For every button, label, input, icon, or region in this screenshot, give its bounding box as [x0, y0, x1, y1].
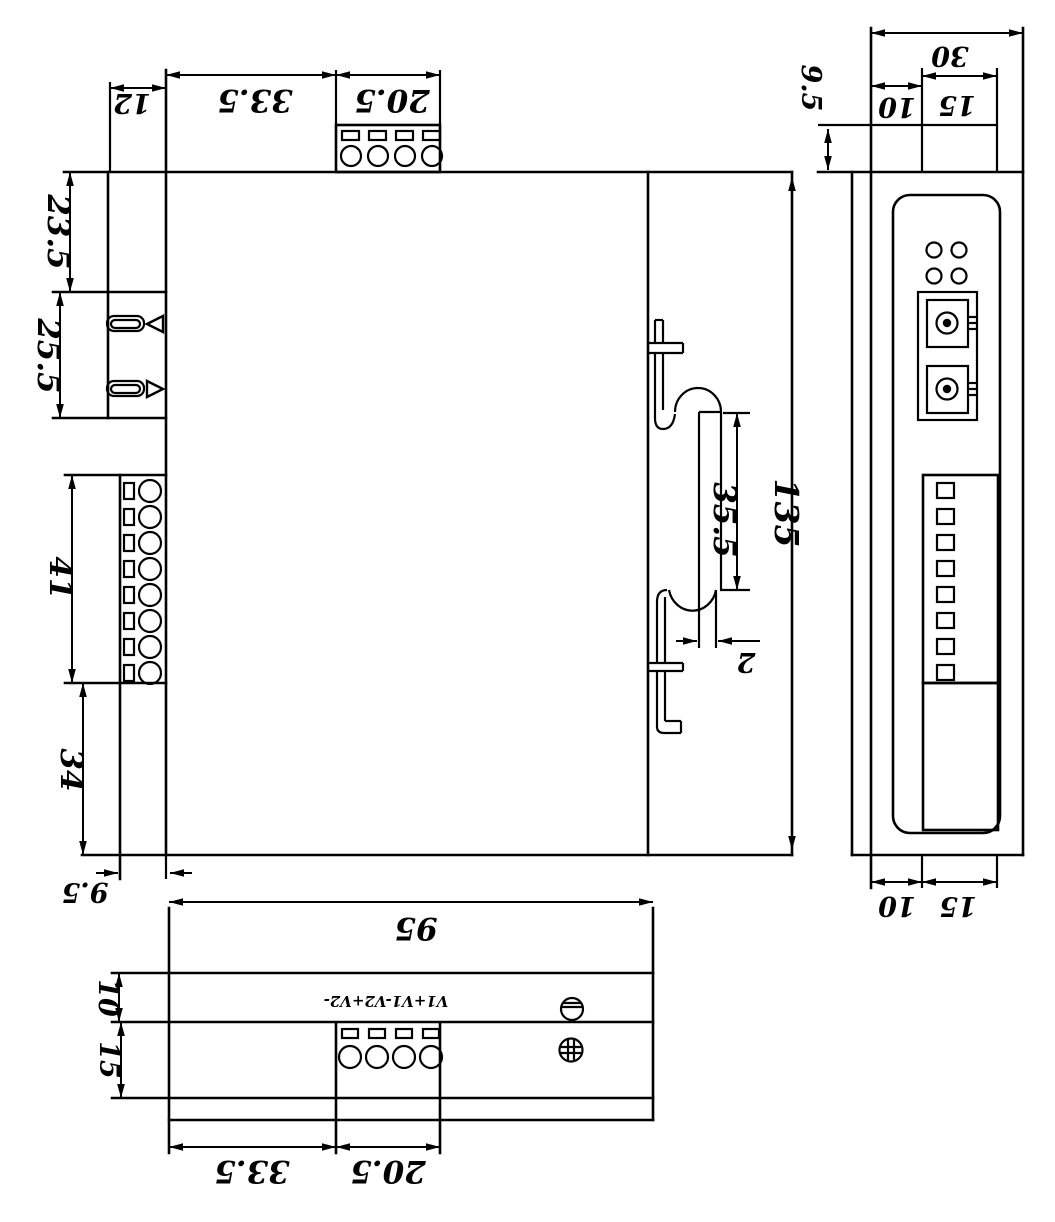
led-icon — [927, 269, 942, 284]
dim-total-width: 95 — [394, 910, 437, 946]
side-view-dimensions: 35.5 135 2 — [676, 172, 806, 855]
drawing-canvas: 12 33.5 20.5 23.5 25.5 41 34 9.5 — [0, 0, 1055, 1222]
led-indicators — [927, 243, 967, 284]
dim-bottom-seg1: 10 — [878, 890, 916, 921]
dim-front-depth: 10 — [92, 979, 123, 1017]
terminal-legend-text: V1+V1-V2+V2- — [324, 992, 449, 1010]
dim-top-seg-left: 33.5 — [217, 82, 293, 118]
slotted-screw-icon — [561, 998, 583, 1020]
dim-terminal-section: 41 — [42, 556, 78, 599]
bottom-view: V1+V1-V2+V2- 95 10 15 33.5 20.5 — [92, 902, 653, 1189]
right-panel-view: 30 15 10 9.5 10 15 — [795, 28, 1023, 921]
side-terminal-block — [65, 475, 166, 684]
din-clip-bottom — [647, 590, 683, 733]
dim-rail-opening: 35.5 — [706, 482, 742, 558]
right-view-dimensions: 30 15 10 9.5 10 15 — [795, 33, 1023, 921]
din-clip-top — [647, 320, 683, 429]
dim-rail-lip: 2 — [737, 646, 757, 677]
phillips-screw-icon — [560, 1039, 583, 1062]
dim-bottom-depth: 9.5 — [62, 876, 109, 907]
side-view-din-rail: 35.5 135 2 — [647, 172, 806, 855]
dim-terminal-depth: 15 — [93, 1041, 124, 1079]
dim-total-height: 135 — [767, 479, 806, 548]
led-icon — [927, 243, 942, 258]
led-icon — [952, 243, 967, 258]
dim-top-seg-right: 20.5 — [354, 82, 431, 118]
fiber-port-section — [53, 292, 166, 418]
front-view: 12 33.5 20.5 23.5 25.5 41 34 9.5 — [30, 70, 792, 907]
fiber-port-tx-icon — [107, 316, 163, 332]
dim-top-offset: 12 — [113, 87, 151, 118]
panel-face — [893, 195, 1000, 833]
dim-seg-left: 33.5 — [214, 1153, 290, 1189]
dim-fiber-section: 25.5 — [30, 317, 66, 394]
led-icon — [952, 269, 967, 284]
top-terminal-block — [336, 125, 442, 172]
dim-top-step-height: 9.5 — [795, 65, 826, 112]
panel-terminal-strip — [923, 475, 998, 830]
dim-bottom-seg2: 15 — [939, 890, 977, 921]
bottom-terminal-block — [336, 1023, 442, 1153]
fiber-port-rx-icon — [107, 381, 163, 397]
mechanical-dimension-drawing: 12 33.5 20.5 23.5 25.5 41 34 9.5 — [0, 0, 1055, 1222]
front-view-dimensions: 12 33.5 20.5 23.5 25.5 41 34 9.5 — [30, 75, 440, 907]
dim-top-seg2: 15 — [938, 89, 976, 120]
dim-lower-section: 34 — [53, 748, 89, 791]
dim-seg-right: 20.5 — [350, 1153, 427, 1189]
fiber-connector-pair — [918, 292, 977, 420]
dim-total-depth: 30 — [931, 40, 969, 71]
dim-upper-section: 23.5 — [40, 193, 76, 270]
dim-top-seg1: 10 — [878, 91, 916, 122]
